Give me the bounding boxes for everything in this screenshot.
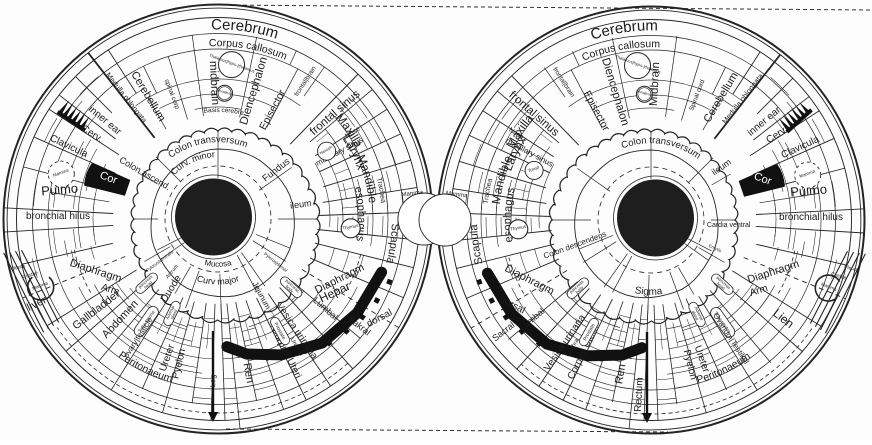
svg-text:Rectum: Rectum <box>633 377 646 412</box>
svg-text:bronchial hilus: bronchial hilus <box>779 212 843 223</box>
svg-text:bronchial hilus: bronchial hilus <box>26 211 90 222</box>
svg-text:Sigma: Sigma <box>634 285 663 298</box>
svg-text:Cardia ventral: Cardia ventral <box>707 222 751 229</box>
svg-text:Leg: Leg <box>208 375 217 388</box>
